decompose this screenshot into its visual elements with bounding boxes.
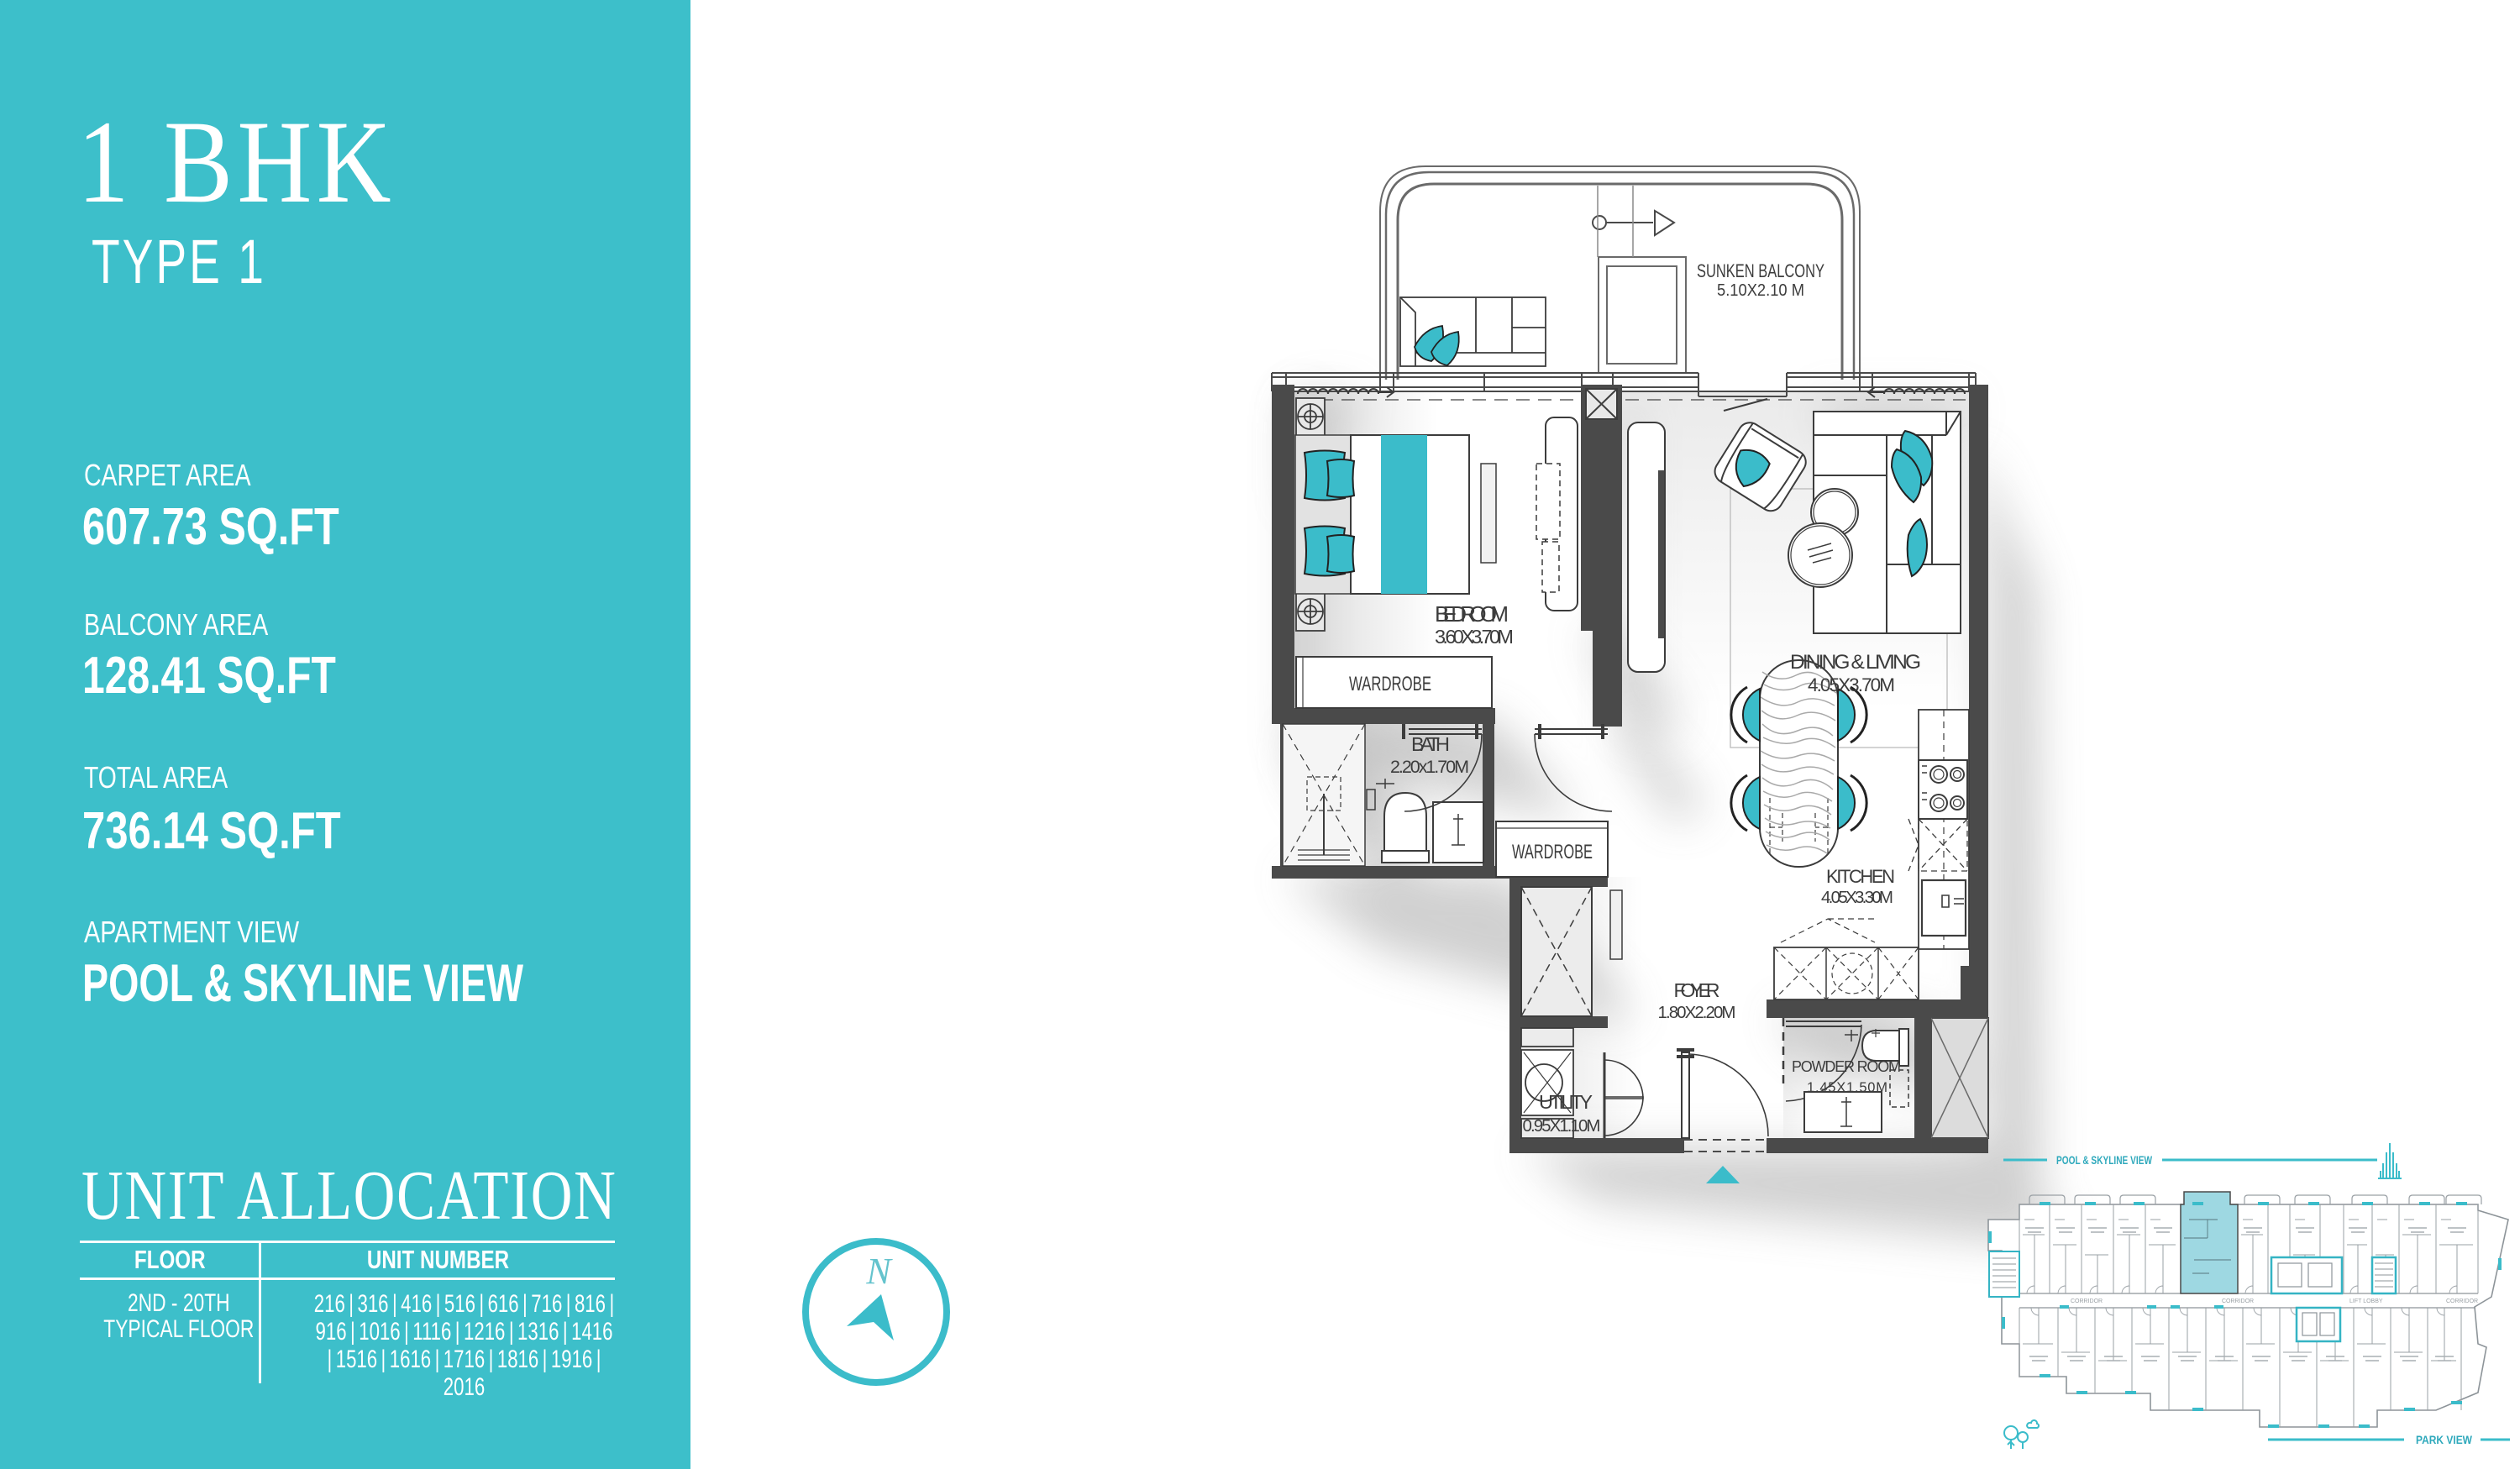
- svg-text:CORRIDOR: CORRIDOR: [2222, 1298, 2254, 1304]
- svg-text:SUNKEN BALCONY: SUNKEN BALCONY: [1697, 260, 1824, 281]
- svg-text:2.20x1.70M: 2.20x1.70M: [1390, 757, 1469, 777]
- svg-text:DINING & LIVING: DINING & LIVING: [1790, 651, 1921, 674]
- svg-text:POWDER ROOM: POWDER ROOM: [1792, 1058, 1901, 1075]
- svg-text:BATH: BATH: [1411, 733, 1450, 755]
- svg-text:PARK VIEW: PARK VIEW: [2416, 1433, 2473, 1446]
- svg-text:4.05X3.30M: 4.05X3.30M: [1821, 888, 1893, 907]
- svg-text:POOL & SKYLINE VIEW: POOL & SKYLINE VIEW: [2056, 1153, 2153, 1167]
- svg-text:UTILITY: UTILITY: [1539, 1091, 1593, 1113]
- svg-text:CORRIDOR: CORRIDOR: [2071, 1298, 2103, 1304]
- svg-text:3.60X3.70M: 3.60X3.70M: [1435, 626, 1514, 648]
- svg-text:1.80X2.20M: 1.80X2.20M: [1658, 1003, 1736, 1022]
- svg-text:CORRIDOR: CORRIDOR: [2446, 1298, 2478, 1304]
- svg-text:BEDROOM: BEDROOM: [1435, 601, 1509, 627]
- svg-text:N: N: [865, 1251, 893, 1292]
- svg-text:WARDROBE: WARDROBE: [1512, 841, 1593, 863]
- svg-text:1.45X1.50M: 1.45X1.50M: [1807, 1080, 1887, 1095]
- svg-text:KITCHEN: KITCHEN: [1826, 866, 1895, 887]
- svg-text:4.05X3.70M: 4.05X3.70M: [1808, 674, 1895, 695]
- svg-text:5.10X2.10 M: 5.10X2.10 M: [1717, 281, 1804, 300]
- svg-text:0.95X1.10M: 0.95X1.10M: [1523, 1116, 1601, 1136]
- svg-text:WARDROBE: WARDROBE: [1349, 673, 1431, 695]
- svg-text:LIFT LOBBY: LIFT LOBBY: [2349, 1298, 2383, 1304]
- svg-text:FOYER: FOYER: [1674, 979, 1720, 1001]
